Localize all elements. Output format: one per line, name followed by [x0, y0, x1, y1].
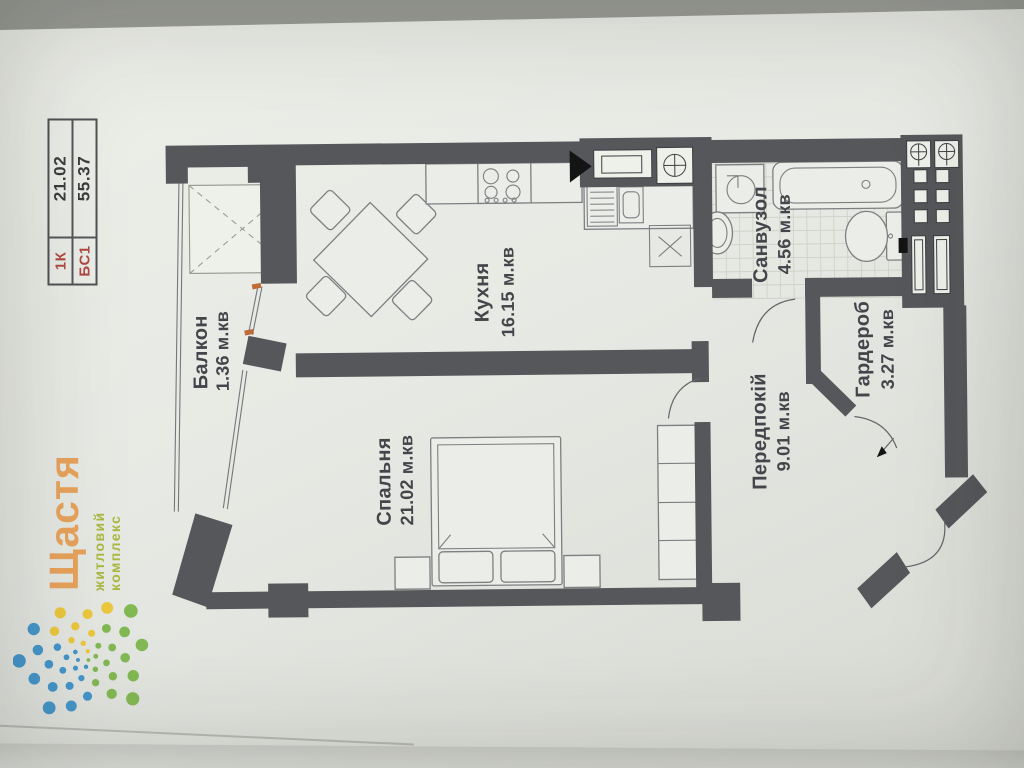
wall-junction-bump: [702, 583, 740, 621]
vent-shaft-icon: [936, 189, 949, 202]
wardrobe-area: 3.27 м.кв: [877, 309, 898, 389]
bathroom-label: Санвузол: [749, 186, 772, 283]
pillow: [501, 551, 555, 583]
wall-entrance-left-angled: [857, 552, 911, 609]
hallway-area: 9.01 м.кв: [773, 391, 794, 471]
wall-t-cap: [692, 341, 709, 382]
pillow: [439, 551, 493, 583]
wall-wardrobe-partition: [805, 278, 821, 384]
entrance-door-arc: [904, 521, 945, 567]
flush-pipe-mark: [899, 238, 908, 253]
entrance-direction-arrow: [877, 438, 894, 457]
wall-bath-bottom-right: [805, 277, 907, 297]
wall-bedroom-kitchen: [296, 349, 694, 377]
wall-kitchen-top: [293, 141, 583, 165]
wardrobe-door-arc: [854, 416, 896, 448]
wall-wardrobe-right: [943, 305, 968, 477]
kitchen-area: 16.15 м.кв: [497, 247, 518, 338]
balcony-area: 1.36 м.кв: [212, 311, 233, 391]
wall-bath-bottom-left: [712, 279, 752, 298]
vent-shaft-icon: [914, 170, 927, 183]
vent-shaft-icon: [914, 210, 927, 223]
vent-shaft-icon: [936, 169, 949, 182]
window-tick: [252, 283, 262, 290]
vent-shaft-icon: [936, 209, 949, 222]
wall-entrance-right-angled: [935, 474, 988, 529]
stove-icon: [478, 163, 531, 204]
wall-column-bump: [268, 583, 308, 617]
wall-wardrobe-angled: [806, 370, 856, 417]
vent-shaft-icon: [914, 190, 927, 203]
bedroom-area: 21.02 м.кв: [396, 435, 417, 526]
wardrobe-label: Гардероб: [851, 301, 874, 398]
wall-bedroom-hall: [694, 422, 712, 590]
kitchen-label: Кухня: [471, 262, 494, 322]
kitchen-dining-table: [304, 188, 439, 323]
floor-plan: Кухня 16.15 м.кв Балкон 1.36 м.кв Спальн…: [0, 0, 1024, 768]
kitchen-appliance-box: [649, 225, 690, 266]
toilet-icon: [845, 211, 903, 262]
wall-kitchen-bath: [693, 161, 713, 287]
bed: [431, 437, 563, 586]
balcony-label: Балкон: [190, 315, 213, 389]
wall-bath-top: [710, 138, 906, 163]
hall-shelf-unit: [657, 425, 697, 579]
bathroom-door-arc: [752, 299, 795, 342]
duct-slot-icon: [912, 236, 927, 294]
duct-slot-icon: [934, 235, 951, 293]
entry-door-leaf: [594, 150, 652, 179]
bedroom-door-arc: [668, 378, 700, 418]
wall-balcony-partition: [260, 155, 297, 283]
wall-small-pillar: [243, 335, 287, 371]
bedroom-label: Спальня: [373, 437, 396, 526]
photo-of-floor-plan: 1К 21.02 БС1 55.37 Щастя житловий компле…: [0, 0, 1024, 768]
bathroom-area: 4.56 м.кв: [774, 194, 795, 274]
hallway-label: Передпокій: [748, 373, 771, 490]
